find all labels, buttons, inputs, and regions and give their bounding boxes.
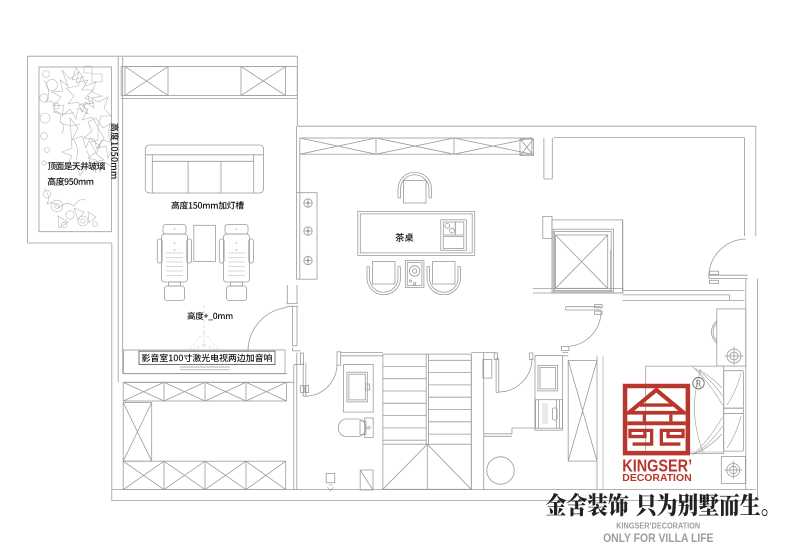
svg-text:KINGSER’DECORATION: KINGSER’DECORATION xyxy=(616,521,700,531)
svg-text:R: R xyxy=(695,379,701,389)
svg-text:DECORATION: DECORATION xyxy=(622,473,691,484)
svg-text:ONLY FOR VILLA LIFE: ONLY FOR VILLA LIFE xyxy=(603,531,713,545)
